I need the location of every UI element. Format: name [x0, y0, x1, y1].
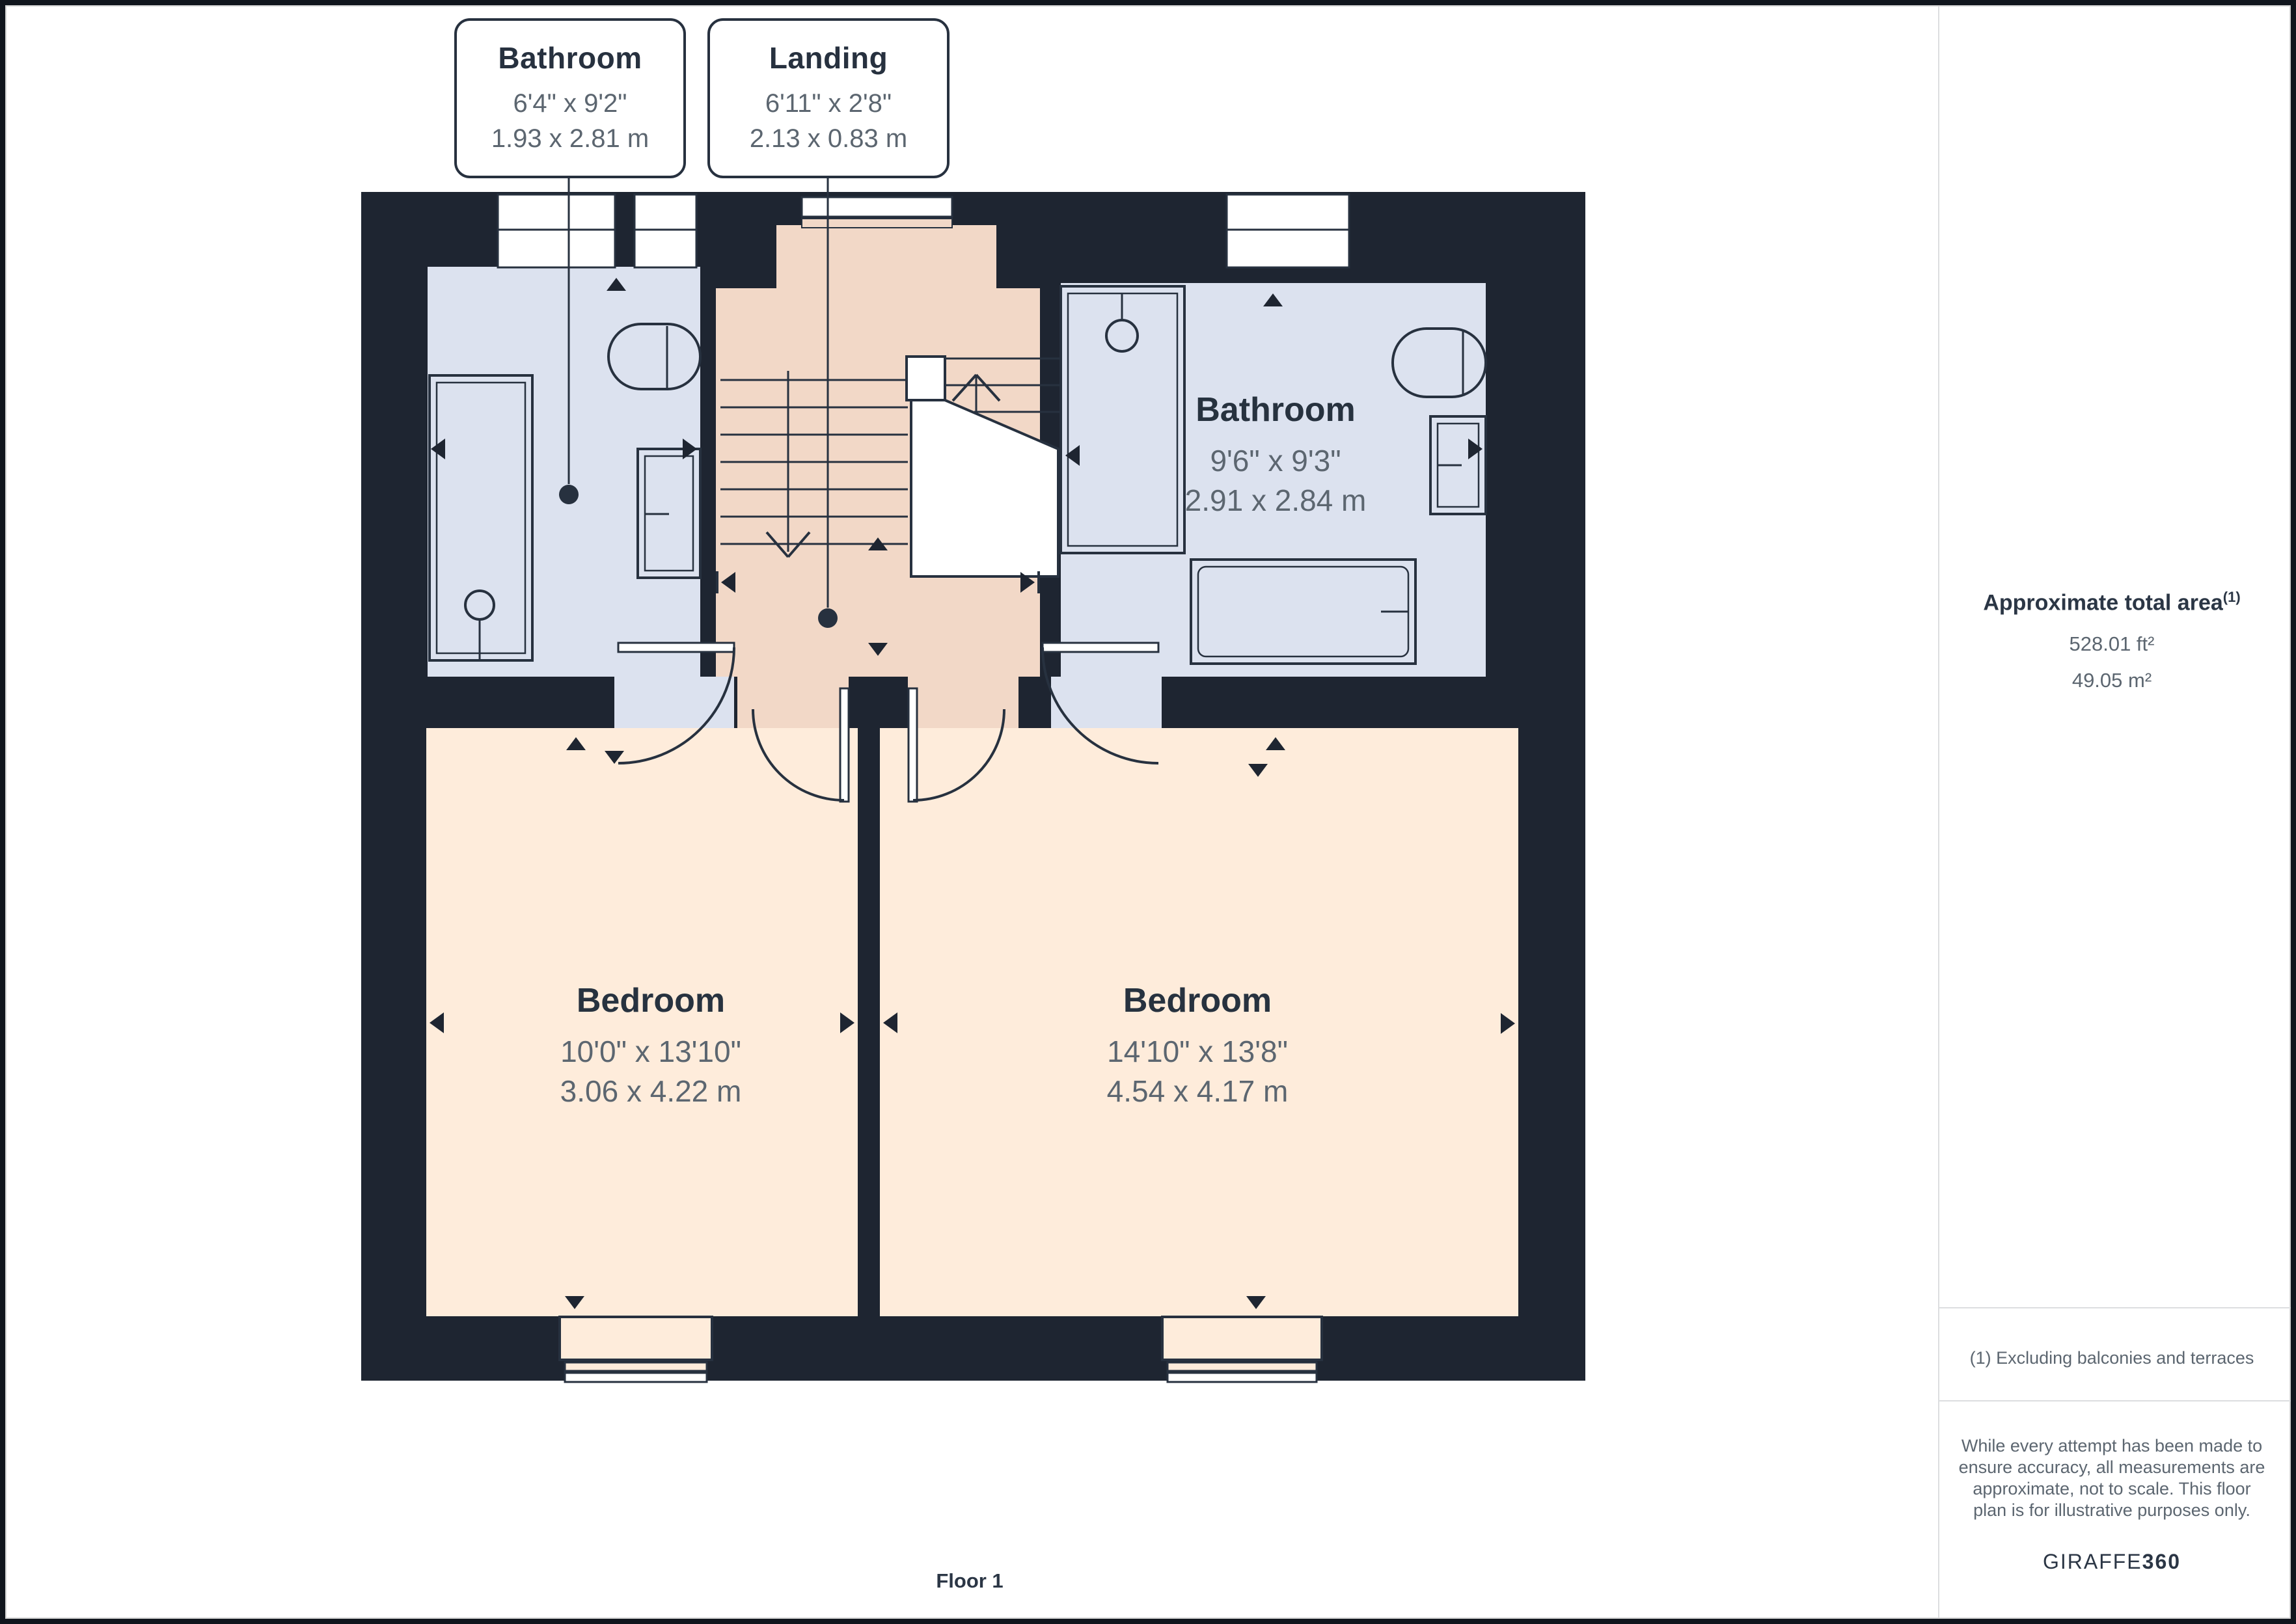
- brand-text: GIRAFFE: [2043, 1550, 2142, 1573]
- room-name: Bedroom: [1002, 981, 1393, 1020]
- room-name: Bathroom: [1080, 390, 1471, 429]
- room-label-bathroom: Bathroom 9'6" x 9'3" 2.91 x 2.84 m: [1080, 390, 1471, 520]
- callout-bathroom-small: Bathroom 6'4" x 9'2" 1.93 x 2.81 m: [454, 18, 686, 178]
- disclaimer-text: While every attempt has been made to ens…: [1939, 1435, 2284, 1521]
- sidebar-divider: [1939, 1400, 2291, 1401]
- callout-imperial-dims: 6'4" x 9'2": [457, 86, 683, 121]
- bay-window-left: [560, 1317, 712, 1360]
- bay-window-right: [1162, 1317, 1322, 1360]
- window-top-left-1: [498, 195, 615, 267]
- leader-dot: [559, 485, 579, 504]
- room-imperial-dims: 10'0" x 13'10": [456, 1032, 846, 1072]
- info-sidebar: Approximate total area(1) 528.01 ft² 49.…: [1938, 7, 2291, 1617]
- total-area-title-text: Approximate total area: [1983, 590, 2222, 615]
- callout-room-name: Bathroom: [457, 40, 683, 75]
- callout-imperial-dims: 6'11" x 2'8": [710, 86, 947, 121]
- footnote-text: (1) Excluding balconies and terraces: [1939, 1348, 2284, 1368]
- giraffe360-logo: GIRAFFE360: [1939, 1550, 2284, 1574]
- leader-dot: [818, 608, 838, 628]
- disclaimer-line: ensure accuracy, all measurements are: [1939, 1457, 2284, 1478]
- room-metric-dims: 2.91 x 2.84 m: [1080, 481, 1471, 521]
- bathroom-right-door-leaf: [1043, 643, 1158, 652]
- floorplan-page: Bathroom 6'4" x 9'2" 1.93 x 2.81 m Landi…: [0, 0, 2296, 1624]
- callout-room-name: Landing: [710, 40, 947, 75]
- floors: [426, 225, 1518, 1316]
- bay-window-left-step: [565, 1362, 707, 1371]
- callout-metric-dims: 1.93 x 2.81 m: [457, 121, 683, 156]
- footnote-marker: (1): [2223, 589, 2241, 605]
- bay-window-right-glass: [1168, 1373, 1317, 1382]
- disclaimer-line: approximate, not to scale. This floor: [1939, 1478, 2284, 1500]
- landing-recess-floor: [776, 225, 996, 290]
- room-name: Bedroom: [456, 981, 846, 1020]
- room-metric-dims: 4.54 x 4.17 m: [1002, 1072, 1393, 1111]
- bay-window-left-glass: [565, 1373, 707, 1382]
- window-top-left-2: [635, 195, 696, 267]
- total-area-m: 49.05 m²: [1939, 669, 2284, 692]
- total-area-block: Approximate total area(1) 528.01 ft² 49.…: [1939, 589, 2284, 692]
- total-area-title: Approximate total area(1): [1939, 589, 2284, 616]
- disclaimer-line: While every attempt has been made to: [1939, 1435, 2284, 1457]
- room-imperial-dims: 14'10" x 13'8": [1002, 1032, 1393, 1072]
- callout-landing: Landing 6'11" x 2'8" 2.13 x 0.83 m: [707, 18, 950, 178]
- floor-title: Floor 1: [840, 1569, 1100, 1593]
- doorway-right-floor: [908, 677, 1018, 728]
- window-top-right: [1227, 195, 1349, 267]
- room-metric-dims: 3.06 x 4.22 m: [456, 1072, 846, 1111]
- brand-suffix-text: 360: [2142, 1550, 2181, 1573]
- disclaimer-line: plan is for illustrative purposes only.: [1939, 1500, 2284, 1521]
- room-label-bedroom-right: Bedroom 14'10" x 13'8" 4.54 x 4.17 m: [1002, 981, 1393, 1111]
- bathroom-left-door-leaf: [618, 643, 734, 652]
- total-area-ft: 528.01 ft²: [1939, 632, 2284, 656]
- window-landing-sill: [802, 219, 952, 228]
- room-label-bedroom-left: Bedroom 10'0" x 13'10" 3.06 x 4.22 m: [456, 981, 846, 1111]
- toilet-icon: [608, 324, 700, 389]
- stairwell-notch: [907, 357, 945, 400]
- window-landing: [802, 197, 952, 217]
- bedroom-right-door-leaf: [909, 688, 917, 802]
- toilet-icon: [1393, 329, 1486, 397]
- bathroom-left-door-floor: [614, 677, 734, 728]
- callout-metric-dims: 2.13 x 0.83 m: [710, 121, 947, 156]
- sidebar-divider: [1939, 1307, 2291, 1308]
- room-imperial-dims: 9'6" x 9'3": [1080, 441, 1471, 481]
- bay-window-right-step: [1168, 1362, 1317, 1371]
- bedroom-left-door-leaf: [840, 688, 849, 802]
